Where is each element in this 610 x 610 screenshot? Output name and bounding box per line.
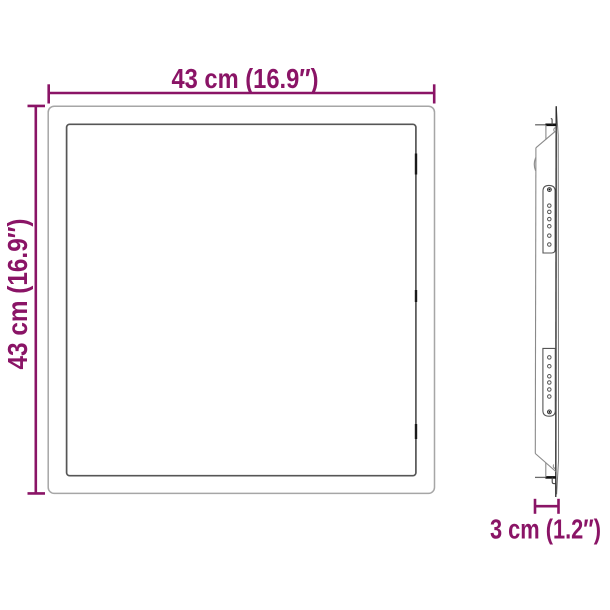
svg-text:43 cm (16.9″): 43 cm (16.9″) <box>172 63 319 94</box>
svg-text:43 cm (16.9″): 43 cm (16.9″) <box>2 219 33 370</box>
svg-text:3 cm (1.2″): 3 cm (1.2″) <box>490 514 601 545</box>
